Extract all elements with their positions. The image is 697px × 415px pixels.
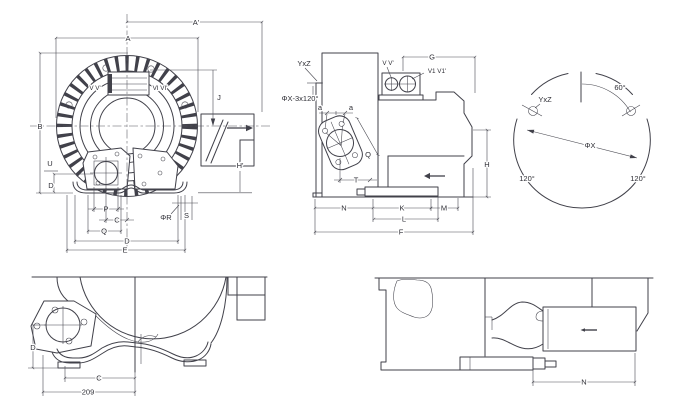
outlet-port	[201, 114, 254, 166]
note-label-phix-3x120: ΦX-3x120°	[282, 94, 319, 103]
foot-flange-plate	[31, 301, 96, 353]
dim-60deg: 60°	[582, 83, 631, 112]
dim-label-u: U	[47, 159, 52, 168]
dim-label-g: G	[429, 53, 435, 62]
dim-u: U	[44, 159, 58, 171]
dim-h: H	[473, 130, 491, 197]
dim-label-j: J	[217, 93, 221, 102]
dim-m: M	[431, 198, 458, 213]
dim-label-60deg: 60°	[614, 83, 625, 92]
dim-label-l: L	[402, 215, 406, 224]
dim-label-phix: ΦX	[585, 141, 596, 150]
dim-n-bottomview: N	[533, 353, 635, 387]
dim-n-side: N	[315, 199, 373, 235]
dim-label-d-left: D	[48, 181, 54, 190]
flange-circle-arcs	[514, 74, 651, 209]
dim-label-209: 209	[82, 388, 95, 397]
dim-label-n-side: N	[341, 204, 346, 213]
dim-label-a: A	[125, 34, 130, 43]
drawing-canvas: A' A B J H' U	[0, 0, 697, 415]
dim-label-k: K	[399, 204, 404, 213]
blower-dimensional-drawing: A' A B J H' U	[0, 0, 697, 415]
front-view: A' A B J H' U	[30, 14, 270, 255]
dim-label-d-bottomview: D	[30, 343, 36, 352]
gland-label-v1-text: V1 V1'	[428, 68, 446, 75]
motor-outline	[378, 92, 472, 197]
dim-label-f: F	[399, 228, 404, 237]
dim-label-e: E	[122, 246, 127, 255]
dim-label-h: H	[484, 160, 489, 169]
dim-label-c-bottomview: C	[96, 374, 102, 383]
dim-label-phi-r: ΦR	[160, 213, 172, 222]
dim-label-q: Q	[101, 227, 107, 236]
silencer-tube-bottom	[460, 357, 556, 370]
note-label-yxz-side: YxZ	[297, 59, 311, 68]
silencer-tube-side	[357, 187, 438, 196]
dim-label-q-side: Q	[365, 150, 371, 159]
note-phix-3x120: ΦX-3x120°	[282, 86, 319, 103]
note-yxz-circle: YxZ	[535, 95, 552, 108]
port-label-vi: VI VI'	[153, 85, 168, 92]
dim-label-m: M	[441, 204, 447, 213]
outlet-pipe-section	[228, 277, 265, 320]
side-view: YxZ ΦX-3x120° a a Q T V	[282, 53, 491, 237]
bolt-holes	[522, 105, 640, 116]
dim-k: K	[374, 199, 431, 213]
note-yxz-side: YxZ	[297, 59, 323, 83]
muffler-box	[108, 72, 149, 95]
bottom-right-view: N	[375, 278, 653, 387]
dim-label-a-prime: A'	[193, 18, 200, 27]
dim-label-s: S	[184, 211, 189, 220]
dim-label-h-prime: H'	[237, 161, 244, 170]
dim-label-t: T	[354, 176, 359, 185]
bottom-left-view: D C 209	[28, 277, 267, 397]
port-label-v: V V'	[89, 85, 100, 92]
dim-l: L	[374, 196, 438, 224]
note-label-yxz-circle: YxZ	[538, 95, 552, 104]
side-port-flange	[315, 112, 366, 173]
dim-phix: ΦX	[527, 130, 637, 158]
dim-label-120-left: 120°	[519, 174, 535, 183]
bolt-circle-view: 60° ΦX YxZ 120° 120°	[514, 72, 651, 208]
motor-bottom-view	[536, 307, 636, 351]
dim-label-n-bottomview: N	[581, 378, 586, 387]
dim-label-c: C	[114, 216, 120, 225]
dim-f: F	[315, 168, 473, 237]
dim-c-bottomview: C	[65, 366, 135, 396]
dim-label-120-right: 120°	[630, 174, 646, 183]
motor-direction-arrow-icon	[424, 173, 445, 179]
dim-label-a-right: a	[349, 103, 354, 112]
dim-label-b: B	[37, 122, 42, 131]
dim-label-d-bottom: D	[124, 237, 130, 246]
dim-phi-r: ΦR	[160, 205, 179, 222]
dim-e: E	[67, 195, 185, 255]
gland-label-v-text: V V'	[382, 60, 393, 67]
